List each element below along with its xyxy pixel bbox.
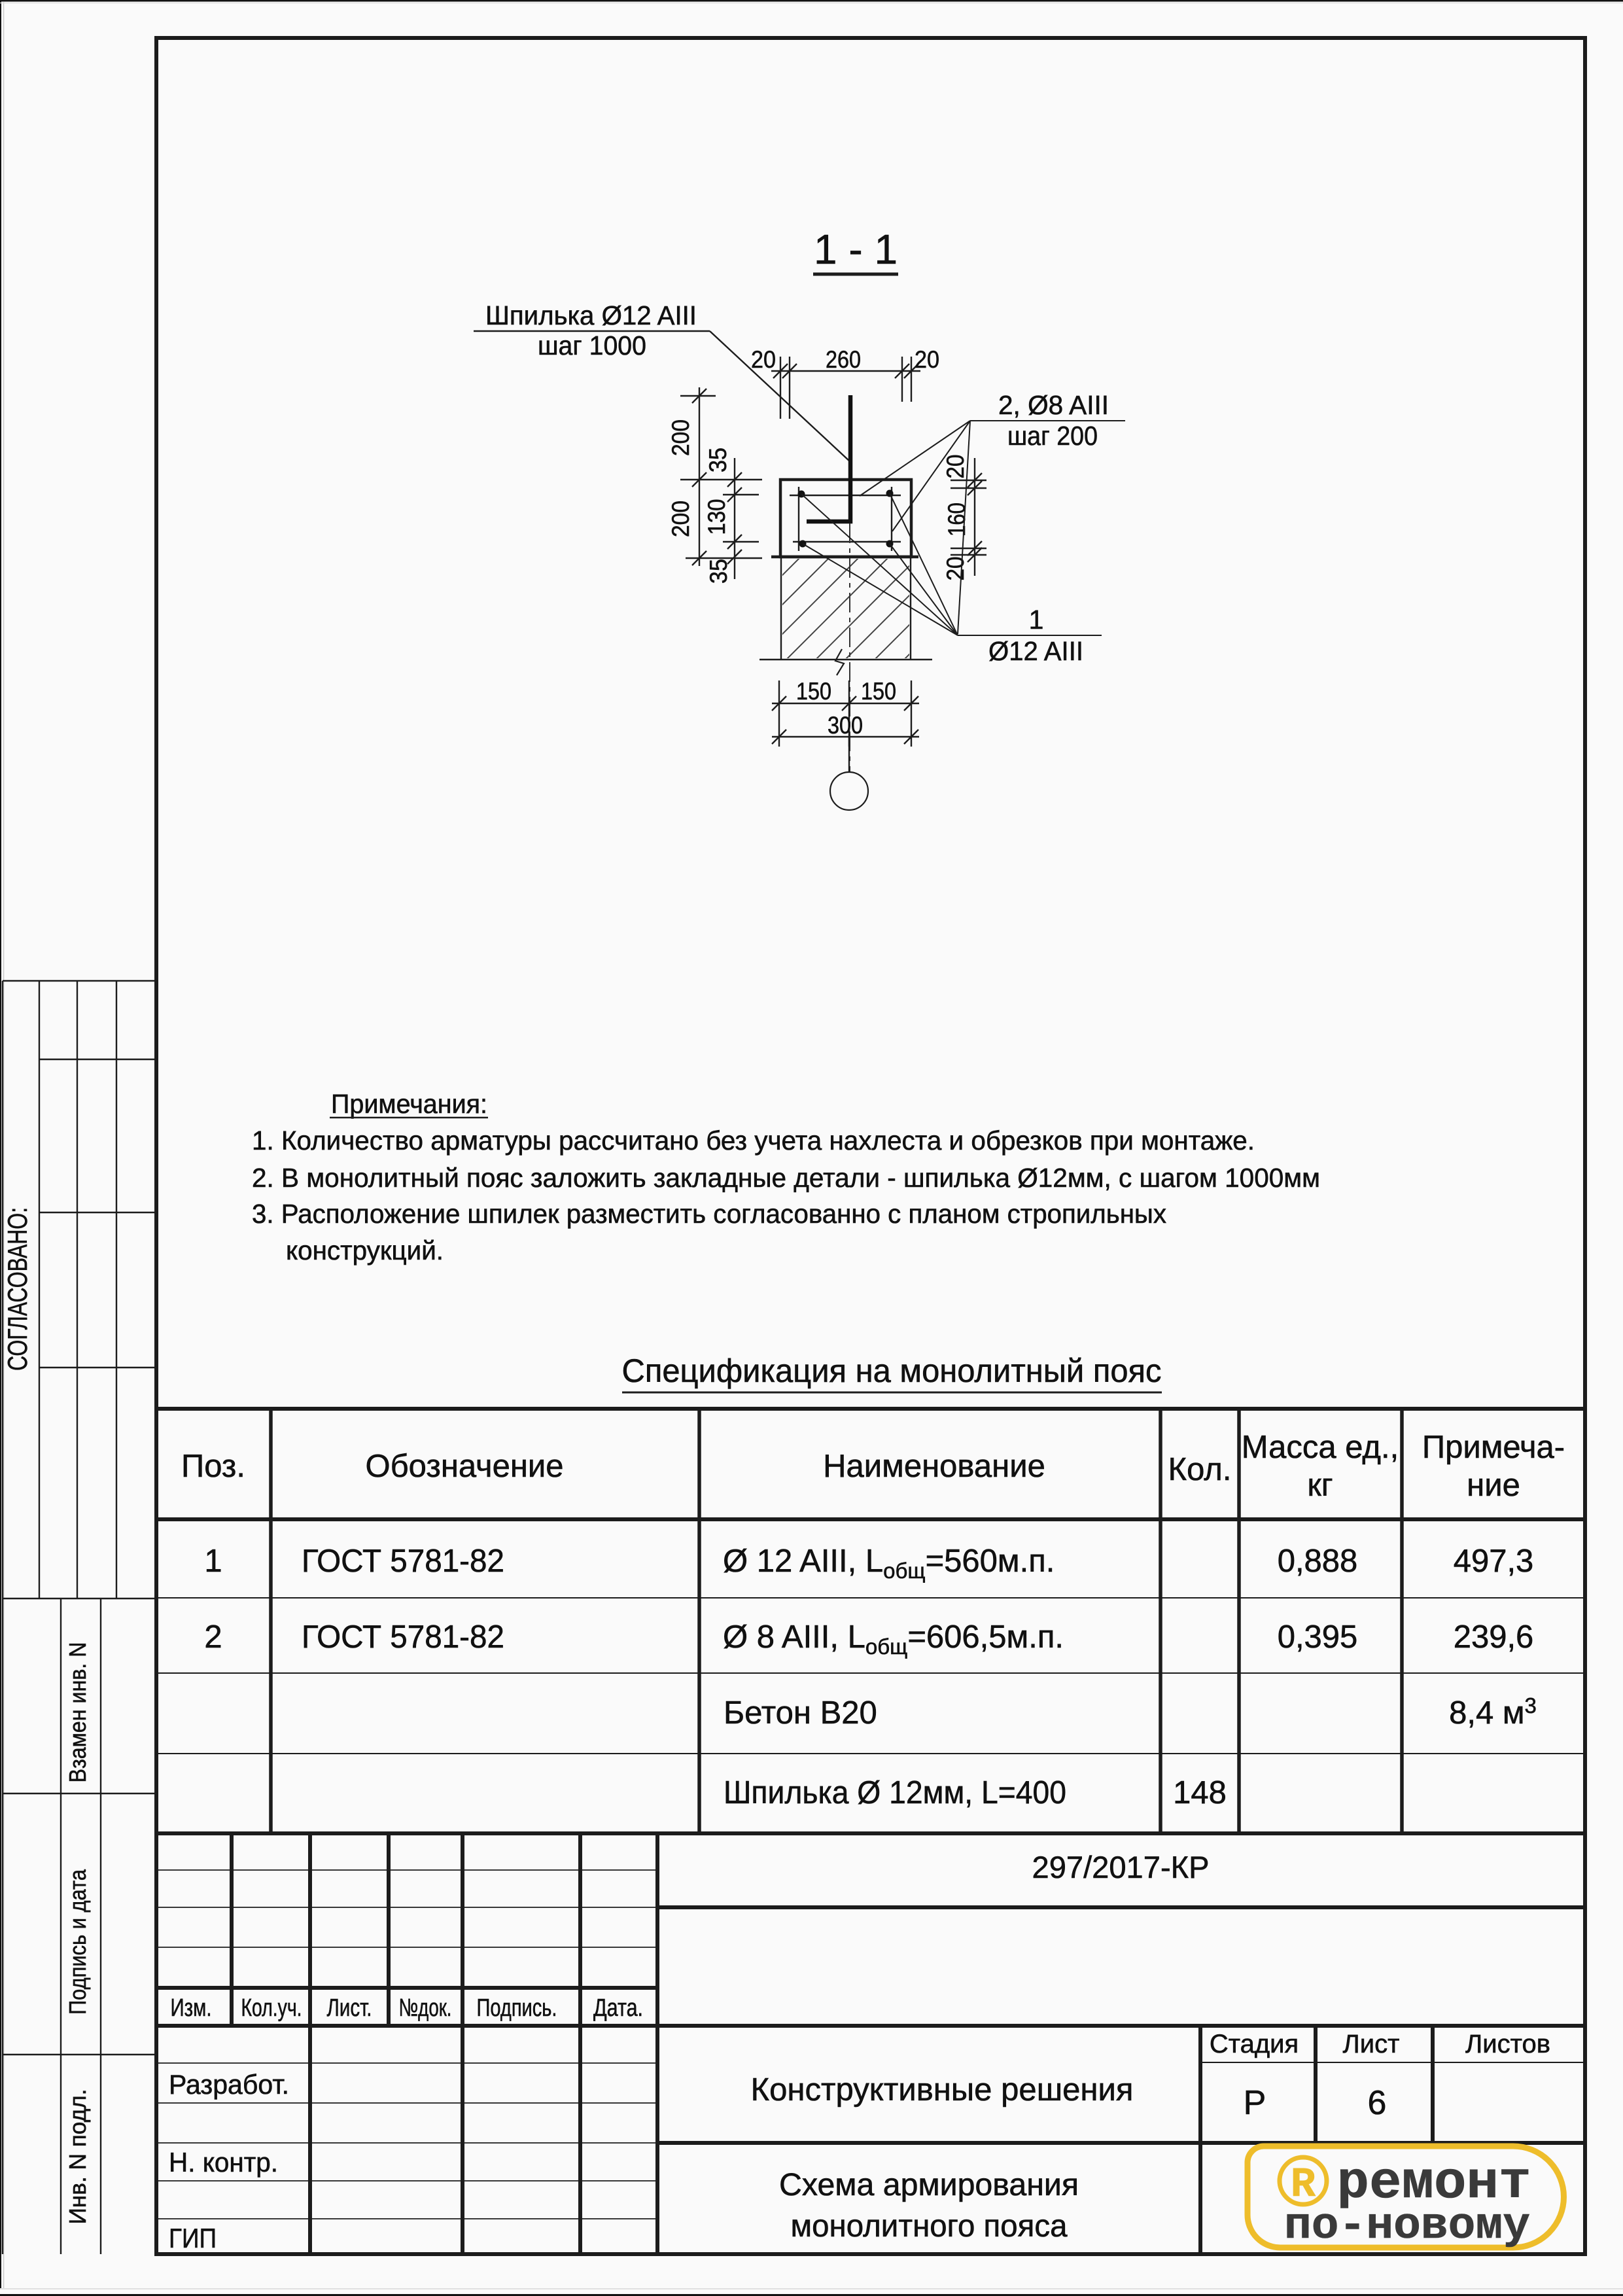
svg-text:Масса ед.,: Масса ед., <box>1242 1430 1399 1465</box>
svg-text:монолитного пояса: монолитного пояса <box>791 2209 1068 2244</box>
svg-text:Дата.: Дата. <box>593 1994 643 2022</box>
svg-text:1: 1 <box>1029 605 1044 635</box>
svg-text:№док.: №док. <box>399 1994 452 2022</box>
svg-text:Примеча-: Примеча- <box>1422 1430 1565 1465</box>
svg-text:Схема армирования: Схема армирования <box>779 2168 1079 2202</box>
svg-text:150: 150 <box>861 678 896 705</box>
svg-text:160: 160 <box>943 503 970 537</box>
svg-text:6: 6 <box>1368 2084 1387 2122</box>
svg-text:20: 20 <box>942 455 969 479</box>
svg-text:2: 2 <box>204 1619 222 1655</box>
svg-text:150: 150 <box>796 678 831 705</box>
svg-text:20: 20 <box>915 346 939 373</box>
svg-text:Поз.: Поз. <box>181 1449 245 1484</box>
svg-text:148: 148 <box>1173 1775 1227 1810</box>
svg-text:35: 35 <box>705 559 732 584</box>
svg-text:2, Ø8 AIII: 2, Ø8 AIII <box>998 390 1109 420</box>
svg-text:Лист.: Лист. <box>327 1994 372 2022</box>
svg-text:297/2017-КР: 297/2017-КР <box>1032 1850 1210 1884</box>
svg-text:260: 260 <box>826 346 861 373</box>
svg-text:Шпилька Ø12 AIII: Шпилька Ø12 AIII <box>485 300 697 330</box>
svg-text:ГОСТ 5781-82: ГОСТ 5781-82 <box>302 1544 504 1579</box>
svg-text:Шпилька Ø 12мм, L=400: Шпилька Ø 12мм, L=400 <box>724 1775 1066 1810</box>
svg-text:497,3: 497,3 <box>1454 1544 1534 1579</box>
svg-text:шаг 200: шаг 200 <box>1007 421 1098 451</box>
svg-text:Р: Р <box>1244 2084 1266 2122</box>
svg-text:Кол.уч.: Кол.уч. <box>241 1994 302 2022</box>
svg-text:20: 20 <box>751 346 776 373</box>
svg-text:Взамен инв. N: Взамен инв. N <box>64 1642 91 1783</box>
svg-text:шаг 1000: шаг 1000 <box>538 330 646 361</box>
svg-text:СОГЛАСОВАНО:: СОГЛАСОВАНО: <box>2 1207 33 1371</box>
svg-text:Изм.: Изм. <box>171 1994 212 2022</box>
svg-text:Конструктивные решения: Конструктивные решения <box>751 2072 1134 2108</box>
svg-text:ГИП: ГИП <box>169 2223 217 2253</box>
svg-text:Наименование: Наименование <box>823 1449 1045 1484</box>
svg-text:0,888: 0,888 <box>1278 1544 1358 1579</box>
svg-text:Лист: Лист <box>1343 2030 1400 2058</box>
svg-text:0,395: 0,395 <box>1278 1619 1358 1655</box>
svg-text:Листов: Листов <box>1465 2030 1550 2058</box>
svg-text:Разработ.: Разработ. <box>169 2069 289 2100</box>
svg-text:8,4 м3: 8,4 м3 <box>1449 1693 1537 1731</box>
svg-text:2. В монолитный пояс заложить: 2. В монолитный пояс заложить закладные … <box>252 1163 1320 1193</box>
svg-text:35: 35 <box>705 448 731 472</box>
svg-text:300: 300 <box>828 712 863 739</box>
svg-text:ГОСТ 5781-82: ГОСТ 5781-82 <box>302 1619 504 1655</box>
svg-text:по-новому: по-новому <box>1284 2201 1530 2252</box>
svg-text:20: 20 <box>942 557 969 581</box>
svg-text:Инв. N подл.: Инв. N подл. <box>64 2089 91 2225</box>
svg-text:3. Расположение шпилек размест: 3. Расположение шпилек разместить соглас… <box>252 1199 1166 1229</box>
svg-text:Примечания:: Примечания: <box>331 1089 487 1119</box>
svg-text:Стадия: Стадия <box>1210 2030 1299 2058</box>
svg-text:Кол.: Кол. <box>1168 1452 1232 1487</box>
svg-text:Спецификация на монолитный поя: Спецификация на монолитный пояс <box>622 1352 1162 1389</box>
svg-text:200: 200 <box>667 419 694 456</box>
svg-text:239,6: 239,6 <box>1454 1619 1534 1655</box>
svg-text:ние: ние <box>1467 1468 1520 1503</box>
svg-text:Подпись.: Подпись. <box>477 1994 557 2022</box>
svg-text:Подпись и дата: Подпись и дата <box>64 1869 91 2015</box>
svg-text:Бетон В20: Бетон В20 <box>724 1695 877 1731</box>
svg-text:Ø12 AIII: Ø12 AIII <box>988 636 1083 666</box>
svg-text:130: 130 <box>703 499 730 535</box>
svg-text:200: 200 <box>667 501 694 537</box>
svg-text:кг: кг <box>1307 1468 1333 1503</box>
svg-text:конструкций.: конструкций. <box>286 1235 444 1265</box>
svg-text:1: 1 <box>204 1544 222 1579</box>
svg-text:Обозначение: Обозначение <box>365 1449 563 1484</box>
svg-text:1. Количество арматуры рассчит: 1. Количество арматуры рассчитано без уч… <box>252 1125 1255 1156</box>
svg-text:1 - 1: 1 - 1 <box>814 226 898 273</box>
svg-text:Н. контр.: Н. контр. <box>169 2147 278 2178</box>
